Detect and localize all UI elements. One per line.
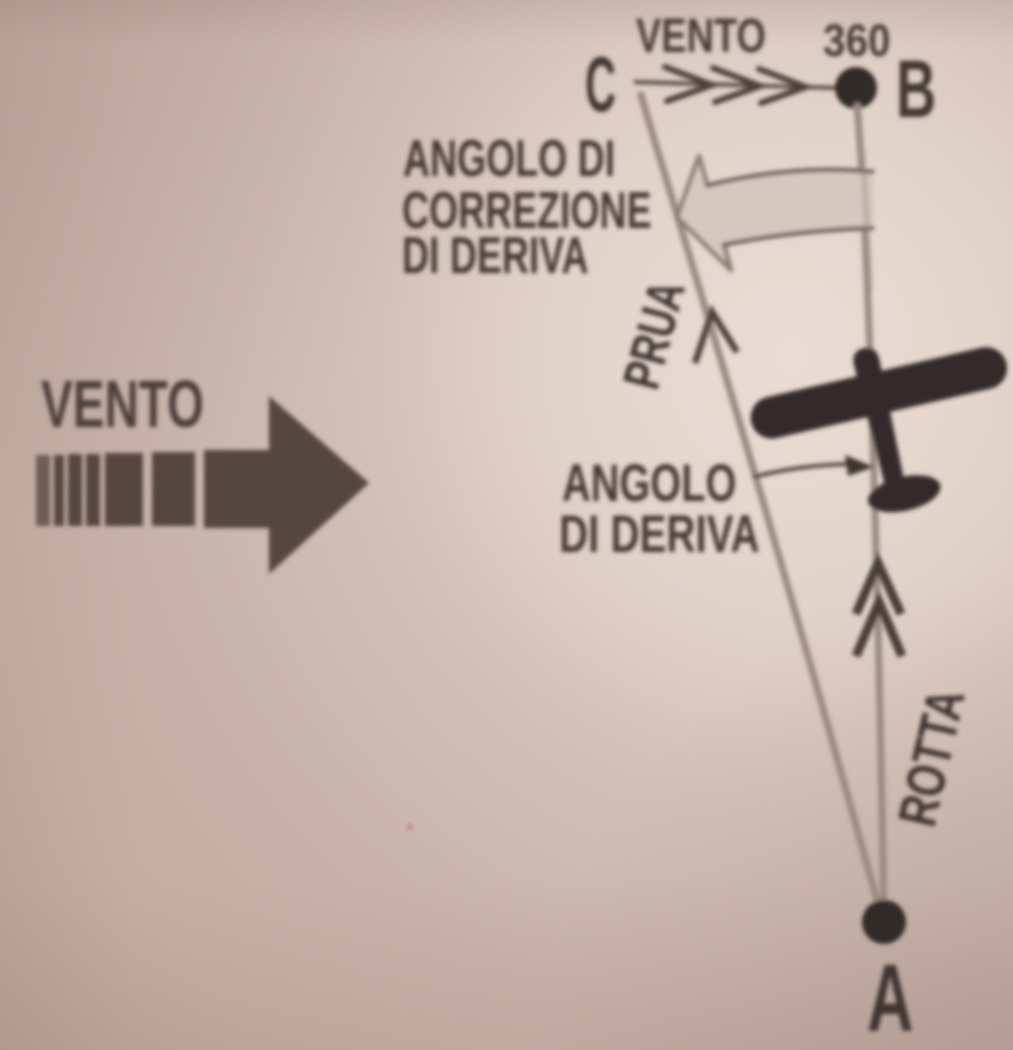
svg-text:VENTO: VENTO bbox=[41, 367, 204, 442]
svg-text:360: 360 bbox=[823, 16, 891, 66]
svg-text:B: B bbox=[896, 43, 936, 134]
svg-text:C: C bbox=[585, 42, 616, 129]
svg-text:VENTO: VENTO bbox=[636, 10, 766, 63]
svg-text:A: A bbox=[867, 945, 913, 1050]
svg-text:DI DERIVA: DI DERIVA bbox=[559, 504, 760, 564]
svg-text:ANGOLO DI: ANGOLO DI bbox=[403, 129, 615, 188]
svg-text:DI DERIVA: DI DERIVA bbox=[402, 226, 588, 285]
